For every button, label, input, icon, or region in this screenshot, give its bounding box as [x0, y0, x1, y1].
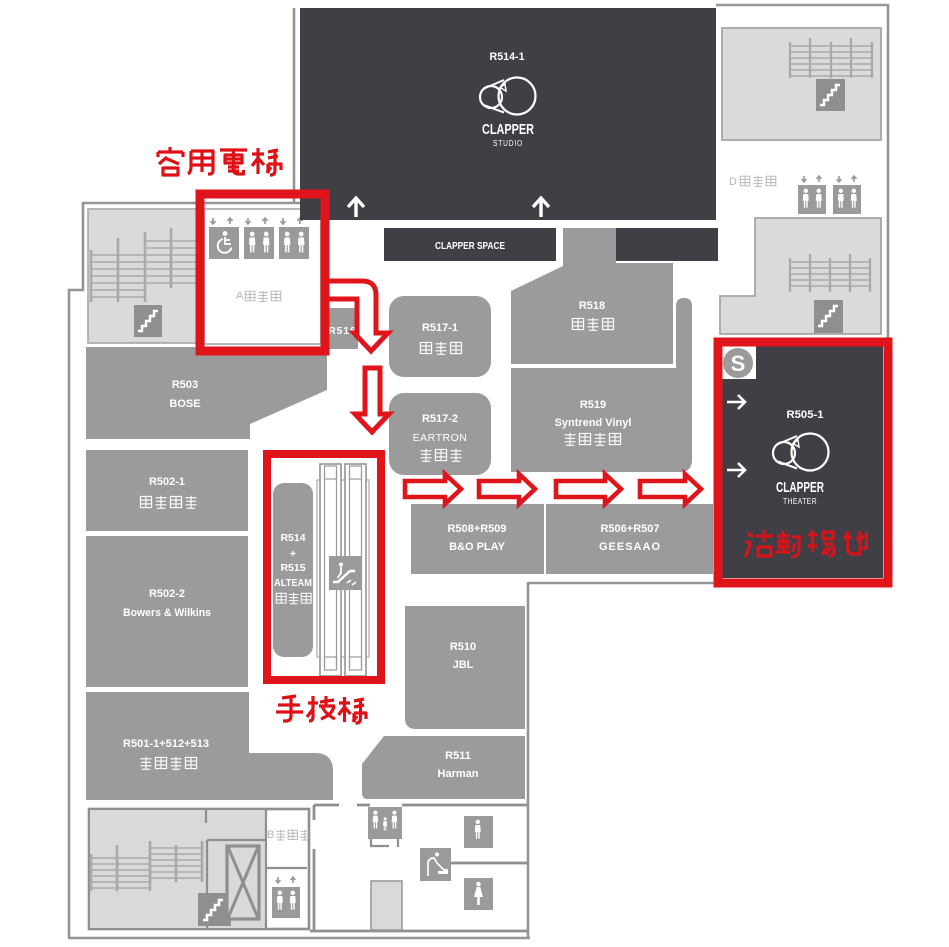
svg-text:Bowers & Wilkins: Bowers & Wilkins — [123, 607, 211, 619]
svg-text:R502-1: R502-1 — [149, 476, 185, 488]
svg-text:BOSE: BOSE — [169, 398, 200, 410]
svg-text:R508+R509: R508+R509 — [447, 523, 506, 535]
svg-text:R511: R511 — [445, 750, 471, 762]
svg-text:R518: R518 — [579, 300, 605, 312]
svg-text:R517-2: R517-2 — [422, 413, 458, 425]
svg-text:B: B — [267, 829, 274, 841]
svg-text:R519: R519 — [580, 399, 606, 411]
svg-text:R502-2: R502-2 — [149, 588, 185, 600]
svg-text:R506+R507: R506+R507 — [600, 523, 659, 535]
svg-text:S: S — [731, 351, 746, 376]
svg-text:GEESAAO: GEESAAO — [599, 541, 661, 553]
svg-text:R517-1: R517-1 — [422, 322, 458, 334]
svg-text:R514-1: R514-1 — [490, 51, 525, 63]
svg-text:Harman: Harman — [438, 768, 479, 780]
svg-text:B&O PLAY: B&O PLAY — [449, 541, 505, 553]
svg-text:D: D — [729, 176, 737, 188]
svg-text:+: + — [290, 548, 296, 560]
svg-text:CLAPPER SPACE: CLAPPER SPACE — [435, 240, 505, 252]
svg-text:R510: R510 — [450, 641, 476, 653]
svg-text:Syntrend Vinyl: Syntrend Vinyl — [555, 417, 632, 429]
svg-text:STUDIO: STUDIO — [493, 139, 523, 148]
svg-text:A: A — [236, 290, 244, 302]
svg-text:R501-1+512+513: R501-1+512+513 — [123, 738, 209, 750]
svg-text:JBL: JBL — [453, 659, 474, 671]
svg-text:R503: R503 — [172, 379, 198, 391]
svg-text:EARTRON: EARTRON — [413, 432, 468, 444]
svg-text:THEATER: THEATER — [783, 497, 817, 506]
svg-text:CLAPPER: CLAPPER — [482, 122, 534, 138]
svg-text:R514: R514 — [280, 532, 305, 544]
svg-text:CLAPPER: CLAPPER — [776, 480, 824, 496]
svg-text:ALTEAM: ALTEAM — [274, 577, 312, 589]
svg-text:R515: R515 — [280, 562, 305, 574]
svg-text:R505-1: R505-1 — [787, 409, 824, 421]
